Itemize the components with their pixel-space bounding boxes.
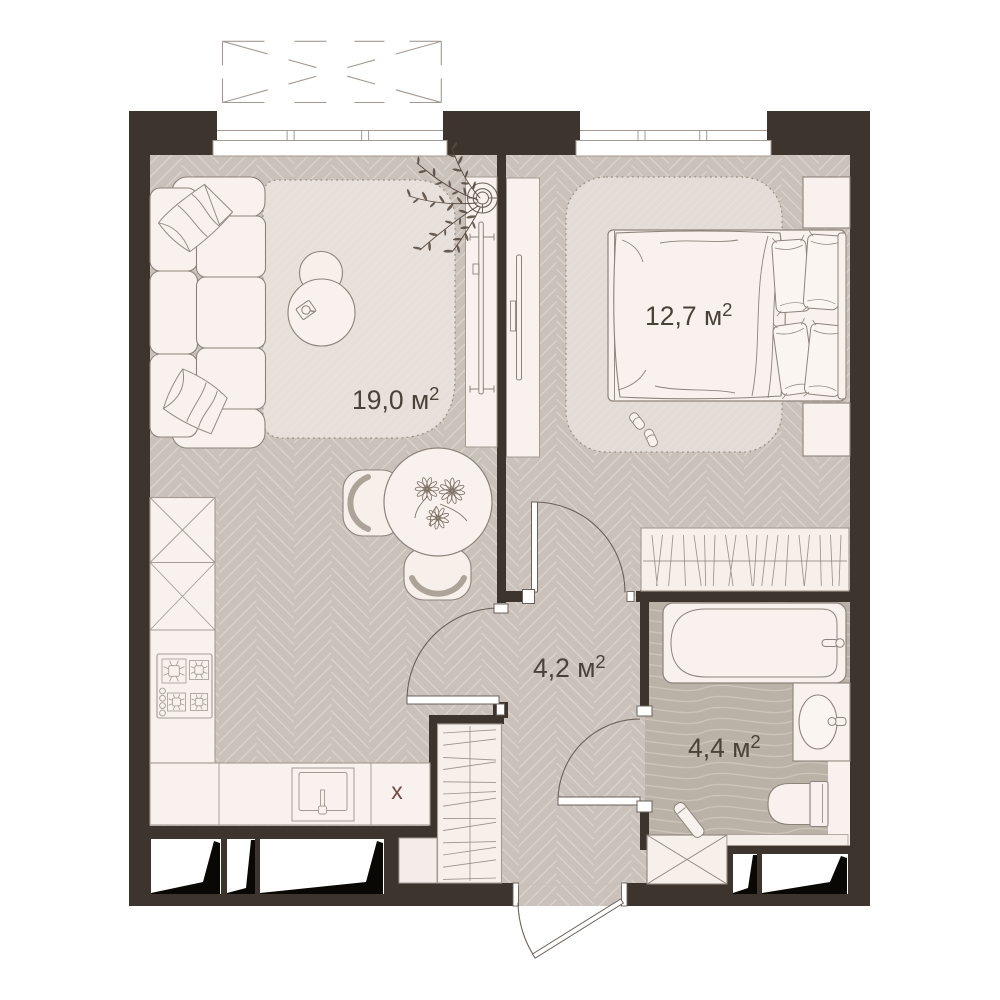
svg-text:19,0 м2: 19,0 м2 (352, 383, 439, 415)
svg-text:х: х (391, 778, 403, 804)
svg-text:4,2 м2: 4,2 м2 (533, 651, 606, 683)
svg-text:12,7 м2: 12,7 м2 (645, 299, 732, 331)
svg-text:4,4 м2: 4,4 м2 (688, 731, 761, 763)
